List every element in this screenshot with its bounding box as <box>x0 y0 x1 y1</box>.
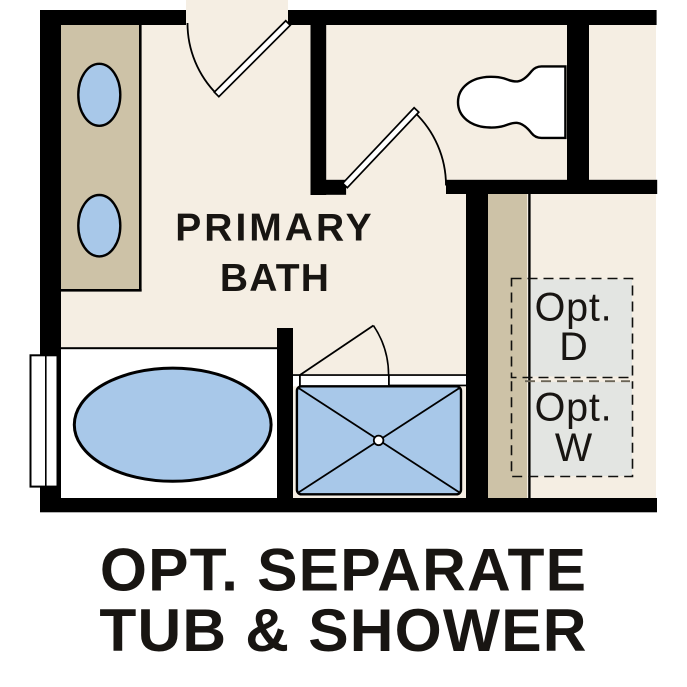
svg-text:D: D <box>559 325 588 369</box>
svg-text:OPT. SEPARATE: OPT. SEPARATE <box>100 535 587 603</box>
svg-text:Opt.: Opt. <box>535 385 613 429</box>
svg-text:BATH: BATH <box>220 257 330 300</box>
svg-text:Opt.: Opt. <box>535 286 613 330</box>
svg-text:W: W <box>555 426 593 470</box>
svg-text:PRIMARY: PRIMARY <box>175 206 374 249</box>
svg-text:TUB & SHOWER: TUB & SHOWER <box>99 596 587 664</box>
